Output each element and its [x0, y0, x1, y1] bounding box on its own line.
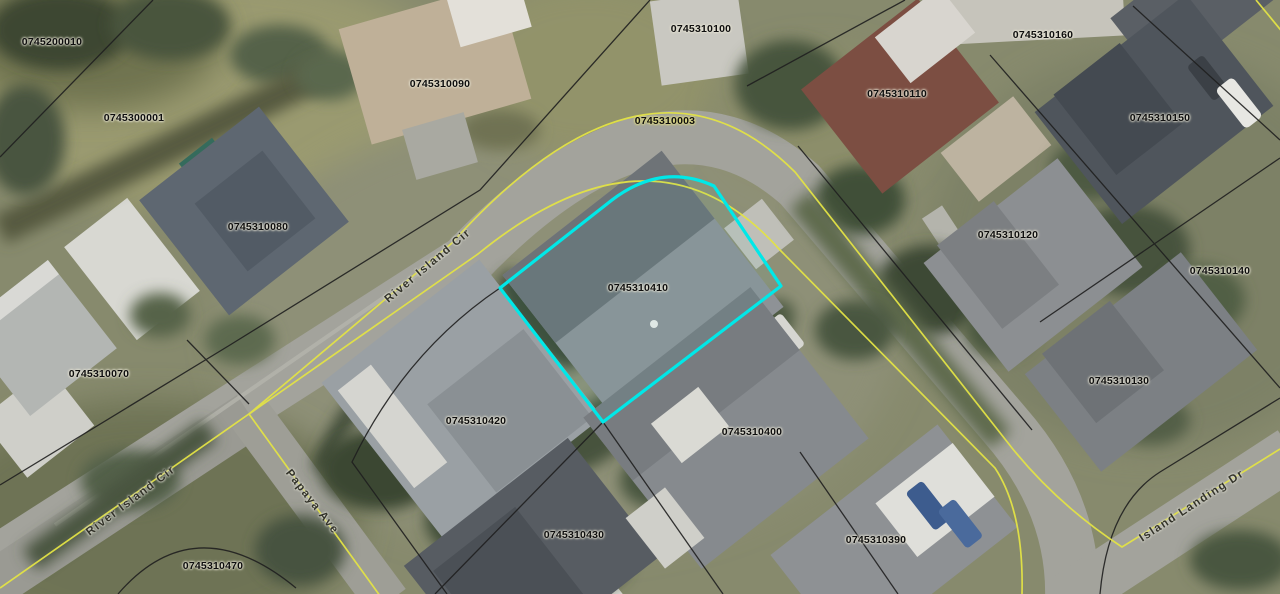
selected-parcel-label: 0745310410	[608, 282, 668, 294]
parcel-label: 0745310160	[1013, 29, 1073, 41]
parcel-label: 0745310400	[722, 426, 782, 438]
parcel-label: 0745310470	[183, 560, 243, 572]
parcel-label: 0745310420	[446, 415, 506, 427]
parcel-label: 0745310120	[978, 229, 1038, 241]
map-canvas[interactable]: 0745200010 0745300001 0745310090 0745310…	[0, 0, 1280, 594]
parcel-label: 0745310150	[1130, 112, 1190, 124]
street-label: Island Landing Dr	[1137, 468, 1246, 545]
parcel-label: 0745310430	[544, 529, 604, 541]
parcel-label: 0745310080	[228, 221, 288, 233]
parcel-label: 0745310140	[1190, 265, 1250, 277]
parcel-label: 0745310070	[69, 368, 129, 380]
map-labels: 0745200010 0745300001 0745310090 0745310…	[0, 0, 1280, 594]
parcel-label: 0745310090	[410, 78, 470, 90]
street-label: Papaya Ave	[283, 467, 341, 536]
parcel-label: 0745310390	[846, 534, 906, 546]
parcel-label: 0745310110	[867, 88, 927, 100]
parcel-label: 0745200010	[22, 36, 82, 48]
parcel-label: 0745310130	[1089, 375, 1149, 387]
parcel-label: 0745300001	[104, 112, 164, 124]
road-parcel-label: 0745310003	[635, 115, 695, 127]
street-label: River Island Cir	[383, 227, 474, 306]
parcel-label: 0745310100	[671, 23, 731, 35]
street-label: River Island Cir	[84, 464, 178, 539]
